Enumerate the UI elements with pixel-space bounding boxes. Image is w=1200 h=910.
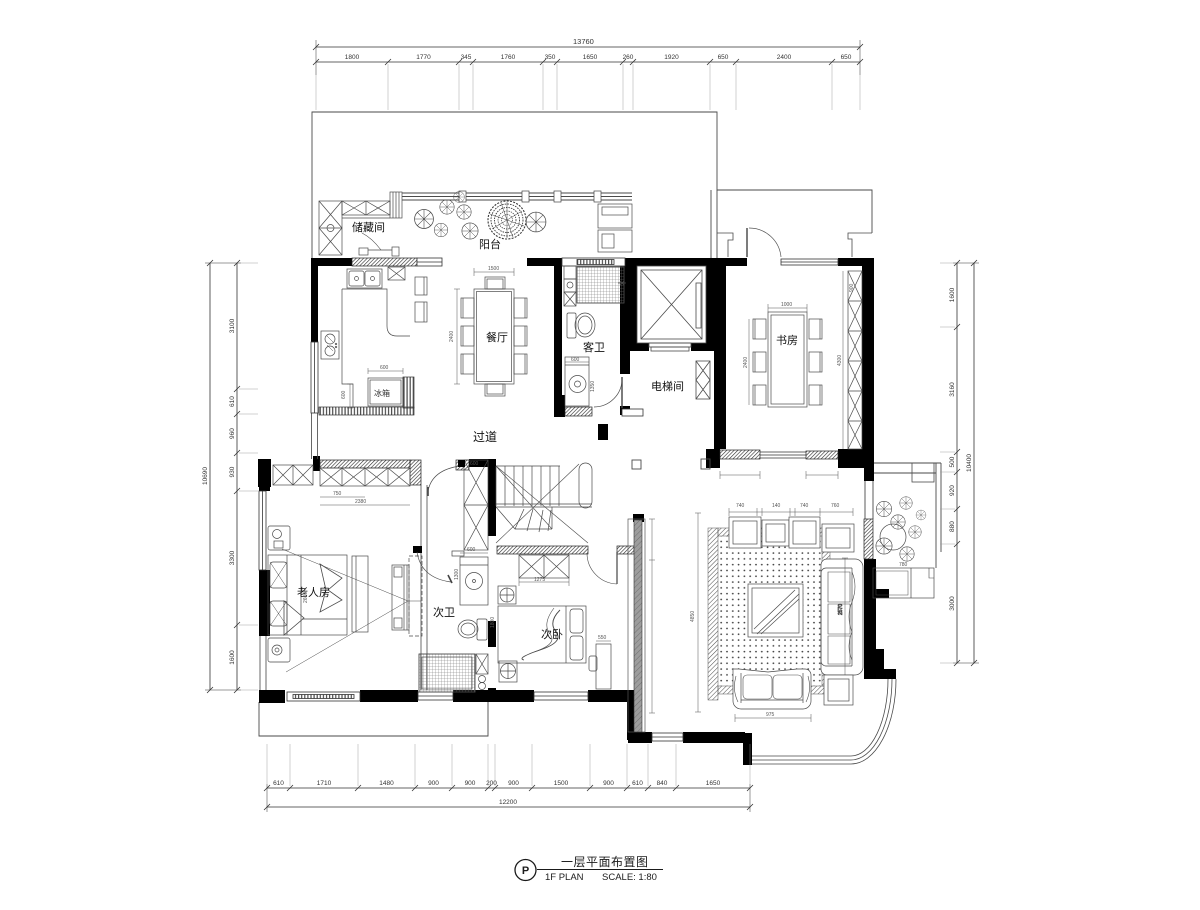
svg-text:4300: 4300 (837, 355, 843, 366)
svg-text:1480: 1480 (379, 780, 394, 787)
svg-text:10690: 10690 (202, 467, 209, 485)
svg-text:2400: 2400 (449, 331, 455, 342)
svg-text:3100: 3100 (229, 318, 236, 333)
svg-text:1800: 1800 (345, 54, 360, 61)
svg-text:1600: 1600 (949, 287, 956, 302)
svg-text:2570: 2570 (838, 604, 844, 615)
svg-text:1760: 1760 (501, 54, 516, 61)
svg-text:600: 600 (470, 461, 479, 467)
svg-text:3160: 3160 (949, 382, 956, 397)
svg-text:610: 610 (273, 780, 284, 787)
svg-text:1800: 1800 (490, 617, 496, 628)
svg-text:900: 900 (849, 283, 855, 292)
svg-text:930: 930 (229, 466, 236, 477)
svg-text:3300: 3300 (229, 550, 236, 565)
svg-text:一层平面布置图: 一层平面布置图 (561, 855, 649, 869)
svg-text:600: 600 (380, 365, 389, 371)
svg-text:4850: 4850 (690, 611, 696, 622)
svg-text:老人房: 老人房 (297, 586, 330, 599)
svg-text:客卫: 客卫 (583, 340, 605, 354)
svg-text:260: 260 (623, 54, 634, 61)
svg-text:140: 140 (772, 503, 781, 509)
svg-text:200: 200 (486, 780, 497, 787)
svg-text:2400: 2400 (743, 357, 749, 368)
svg-text:550: 550 (598, 635, 607, 641)
svg-text:750: 750 (333, 491, 342, 497)
svg-text:12200: 12200 (499, 799, 517, 806)
svg-text:610: 610 (229, 396, 236, 407)
svg-text:900: 900 (508, 780, 519, 787)
svg-text:1600: 1600 (229, 650, 236, 665)
svg-text:1500: 1500 (488, 266, 499, 272)
svg-text:10400: 10400 (966, 454, 973, 472)
svg-text:2400: 2400 (777, 54, 792, 61)
svg-text:880: 880 (949, 521, 956, 532)
svg-text:1770: 1770 (416, 54, 431, 61)
svg-text:600: 600 (467, 547, 476, 553)
svg-text:350: 350 (545, 54, 556, 61)
svg-text:冰箱: 冰箱 (374, 388, 390, 398)
svg-text:电梯间: 电梯间 (651, 380, 684, 393)
svg-text:3000: 3000 (949, 596, 956, 611)
svg-text:1275: 1275 (534, 577, 545, 583)
svg-text:610: 610 (632, 780, 643, 787)
svg-text:900: 900 (465, 780, 476, 787)
svg-text:500: 500 (949, 456, 956, 467)
svg-text:1300: 1300 (454, 569, 460, 580)
svg-text:2380: 2380 (355, 499, 366, 505)
svg-text:1650: 1650 (706, 780, 721, 787)
svg-text:650: 650 (841, 54, 852, 61)
svg-text:345: 345 (461, 54, 472, 61)
svg-text:780: 780 (899, 562, 908, 568)
svg-text:阳台: 阳台 (479, 237, 501, 251)
svg-text:900: 900 (603, 780, 614, 787)
svg-text:储藏间: 储藏间 (352, 220, 385, 234)
svg-text:1710: 1710 (317, 780, 332, 787)
svg-text:书房: 书房 (776, 334, 798, 347)
svg-text:1000: 1000 (781, 302, 792, 308)
svg-text:SCALE: 1:80: SCALE: 1:80 (602, 872, 657, 883)
svg-text:次卧: 次卧 (541, 627, 563, 641)
svg-text:1350: 1350 (590, 381, 596, 392)
svg-text:650: 650 (718, 54, 729, 61)
svg-text:P: P (522, 865, 529, 877)
svg-text:600: 600 (571, 357, 580, 363)
svg-text:2600: 2600 (303, 592, 309, 603)
svg-text:1920: 1920 (664, 54, 679, 61)
svg-text:1650: 1650 (583, 54, 598, 61)
svg-text:过道: 过道 (473, 430, 497, 444)
svg-text:975: 975 (766, 712, 775, 718)
svg-text:960: 960 (229, 428, 236, 439)
svg-text:600: 600 (341, 390, 347, 399)
svg-text:740: 740 (736, 503, 745, 509)
svg-text:13760: 13760 (573, 37, 594, 46)
svg-text:餐厅: 餐厅 (486, 330, 508, 344)
svg-text:840: 840 (657, 780, 668, 787)
svg-text:次卫: 次卫 (433, 605, 455, 619)
svg-text:1F PLAN: 1F PLAN (545, 872, 584, 883)
svg-text:900: 900 (428, 780, 439, 787)
svg-text:740: 740 (800, 503, 809, 509)
svg-text:920: 920 (949, 485, 956, 496)
svg-text:760: 760 (831, 503, 840, 509)
svg-text:1500: 1500 (554, 780, 569, 787)
